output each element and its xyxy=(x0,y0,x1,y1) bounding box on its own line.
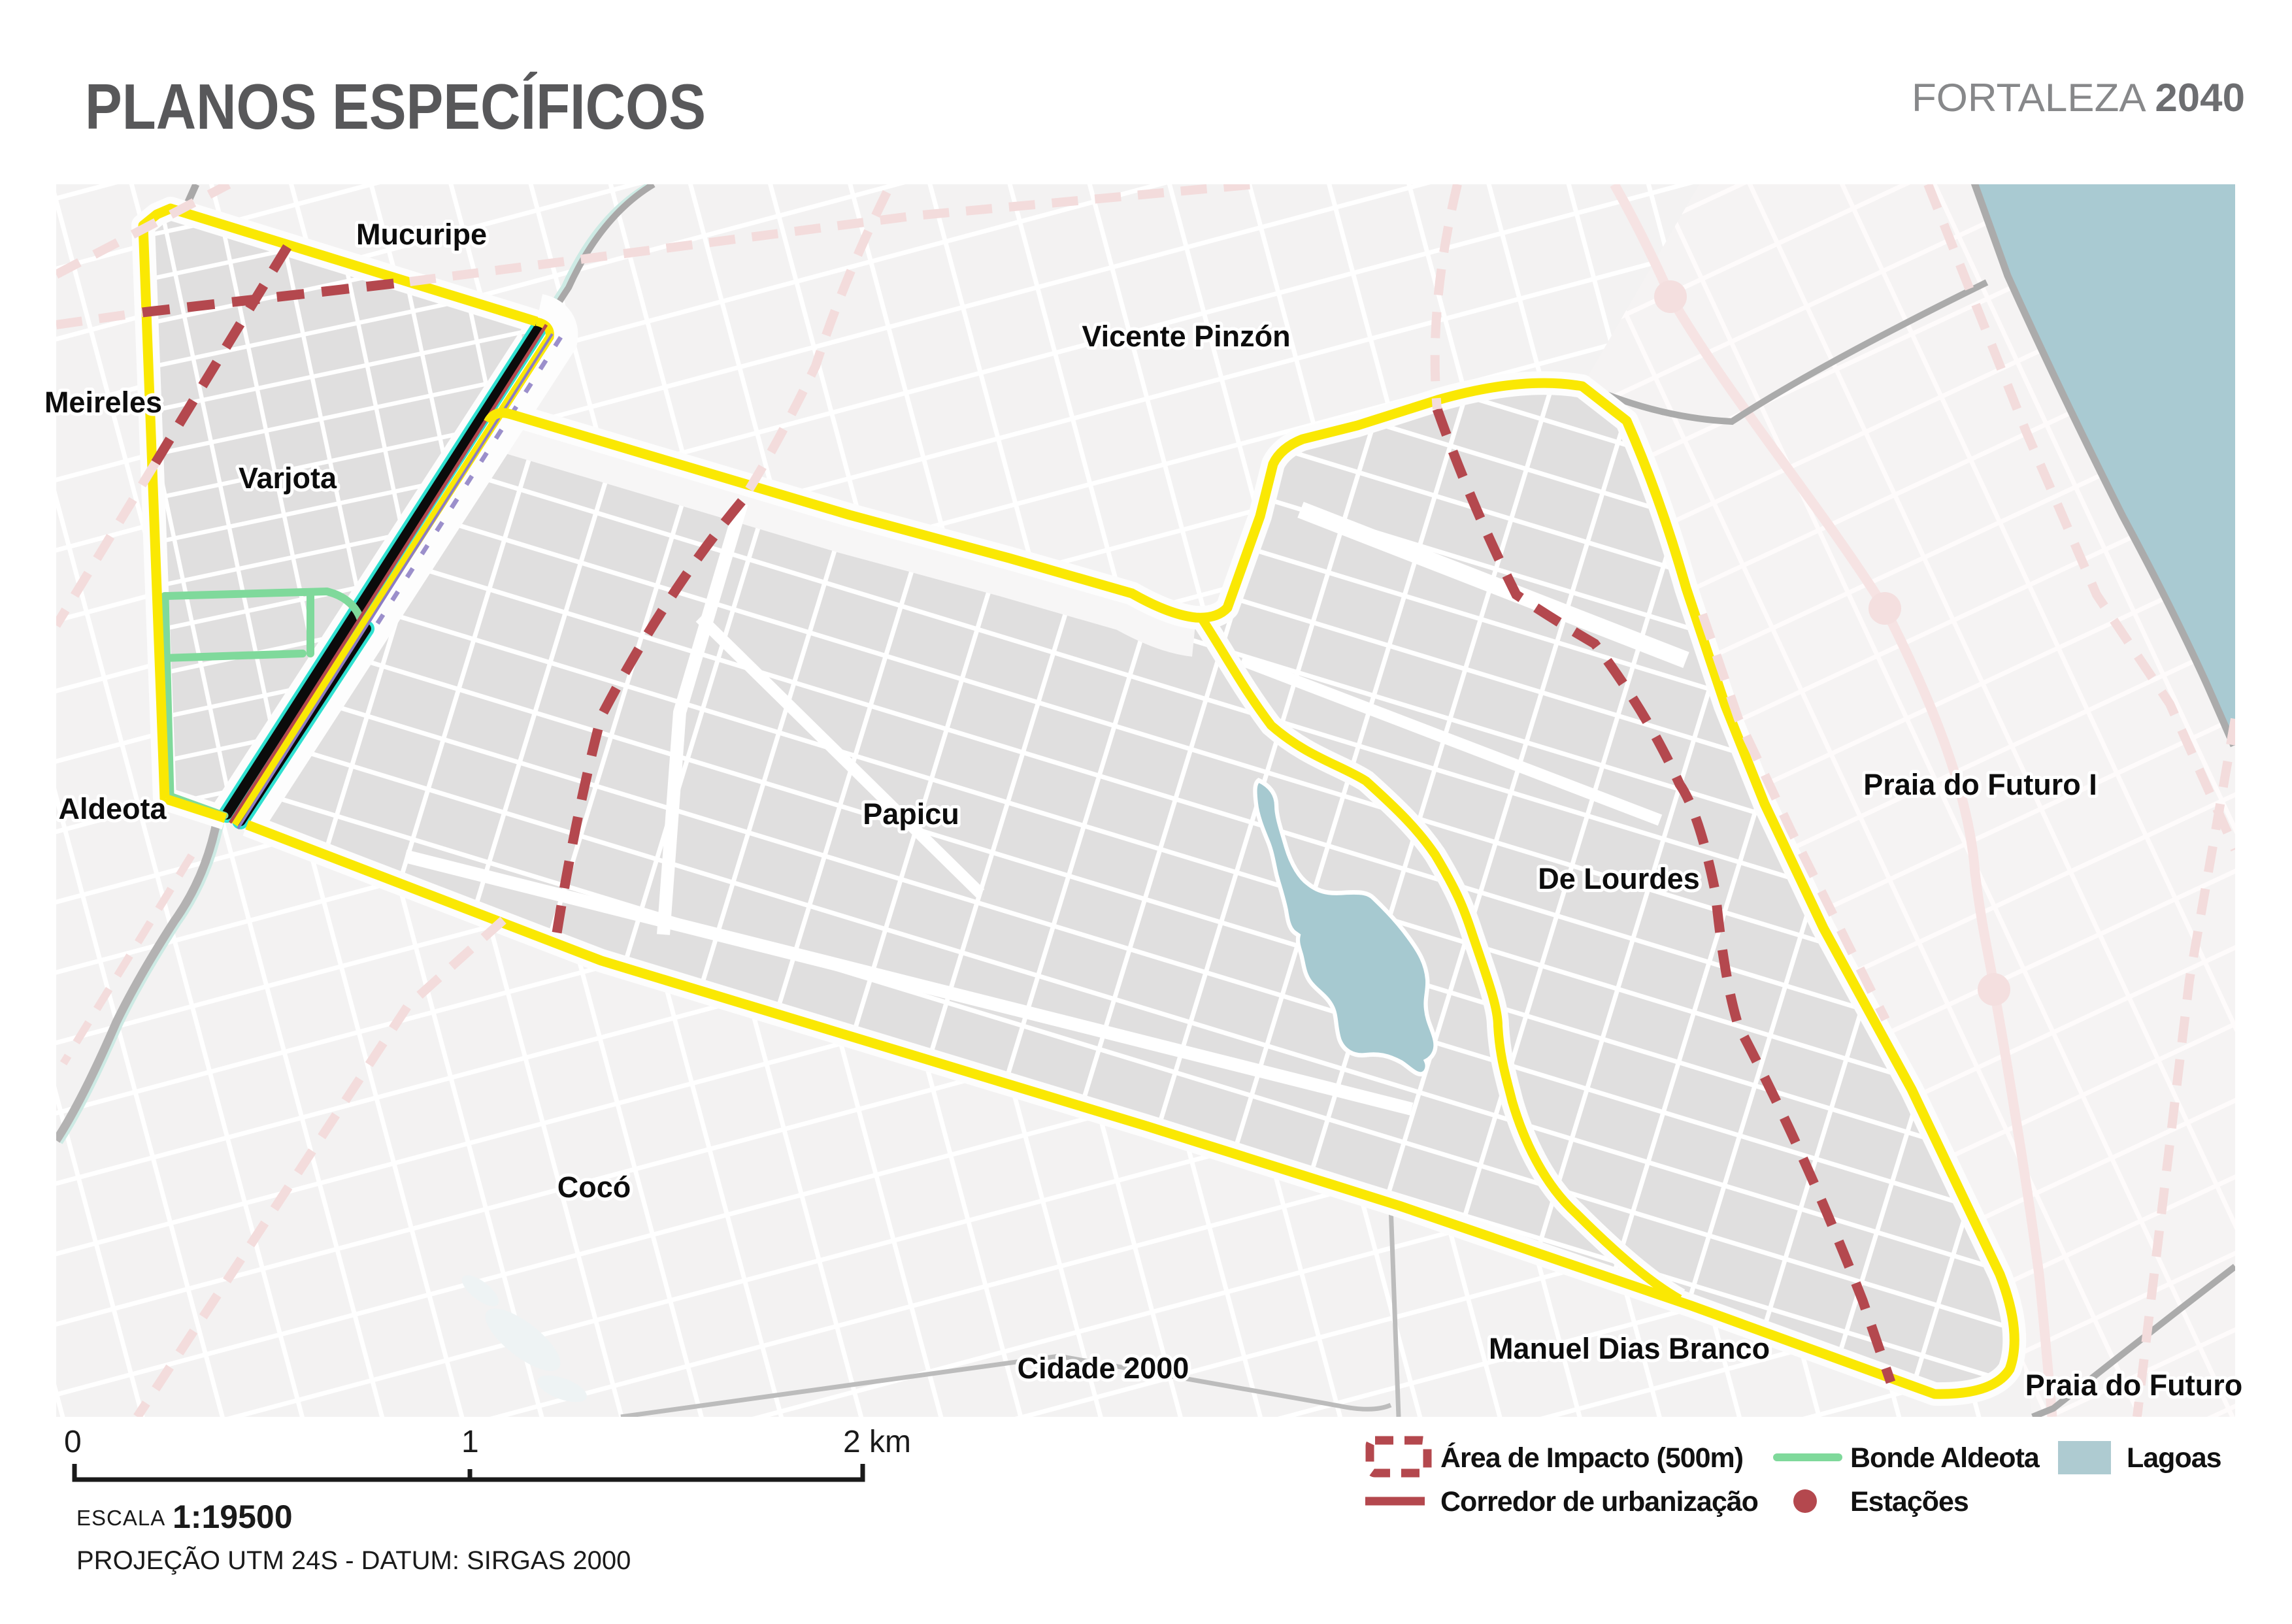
svg-text:PLANOS ESPECÍFICOS: PLANOS ESPECÍFICOS xyxy=(85,71,706,142)
svg-text:FORTALEZA 2040: FORTALEZA 2040 xyxy=(1912,76,2245,120)
svg-text:Cocó: Cocó xyxy=(557,1170,631,1204)
svg-text:Aldeota: Aldeota xyxy=(58,792,167,825)
svg-text:Bonde Aldeota: Bonde Aldeota xyxy=(1850,1442,2040,1474)
svg-text:0: 0 xyxy=(64,1425,82,1459)
svg-text:1: 1 xyxy=(461,1425,479,1459)
svg-text:Mucuripe: Mucuripe xyxy=(356,218,487,251)
svg-text:De Lourdes: De Lourdes xyxy=(1538,862,1700,895)
svg-text:Praia do Futuro I: Praia do Futuro I xyxy=(1863,768,2097,801)
svg-text:Corredor de urbanização: Corredor de urbanização xyxy=(1440,1486,1758,1517)
svg-text:PROJEÇÃO UTM 24S - DATUM: SIRG: PROJEÇÃO UTM 24S - DATUM: SIRGAS 2000 xyxy=(76,1546,631,1575)
svg-text:1:19500: 1:19500 xyxy=(173,1499,293,1535)
svg-text:Meireles: Meireles xyxy=(44,386,162,419)
svg-text:Lagoas: Lagoas xyxy=(2127,1442,2221,1474)
svg-text:2 km: 2 km xyxy=(843,1425,911,1459)
svg-text:Área de Impacto (500m): Área de Impacto (500m) xyxy=(1440,1442,1743,1474)
svg-text:Papicu: Papicu xyxy=(863,797,959,831)
svg-text:Varjota: Varjota xyxy=(239,461,337,495)
svg-text:ESCALA: ESCALA xyxy=(76,1506,165,1530)
svg-text:Estações: Estações xyxy=(1850,1486,1968,1517)
svg-text:Vicente Pinzón: Vicente Pinzón xyxy=(1082,320,1290,353)
svg-text:Praia do Futuro: Praia do Futuro xyxy=(2025,1368,2243,1402)
svg-text:Cidade 2000: Cidade 2000 xyxy=(1018,1351,1189,1385)
svg-text:Manuel Dias Branco: Manuel Dias Branco xyxy=(1489,1332,1770,1365)
